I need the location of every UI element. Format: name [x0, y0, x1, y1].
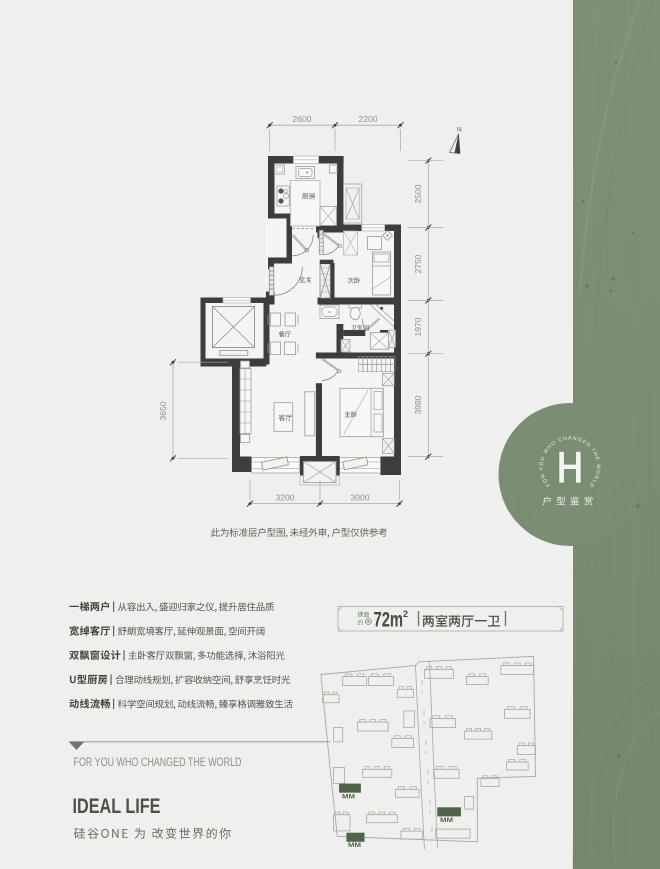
svg-text:MM: MM: [342, 795, 355, 801]
svg-text:IDEAL LIFE: IDEAL LIFE: [73, 794, 161, 818]
svg-text:3200: 3200: [276, 493, 295, 503]
svg-text:1970: 1970: [413, 317, 423, 336]
svg-text:MM: MM: [348, 843, 361, 849]
svg-text:2750: 2750: [413, 254, 423, 273]
svg-text:3650: 3650: [158, 401, 168, 420]
svg-text:2600: 2600: [293, 114, 312, 124]
svg-text:FOR YOU WHO CHANGED THE WORLD: FOR YOU WHO CHANGED THE WORLD: [74, 757, 242, 769]
svg-text:MM: MM: [440, 818, 453, 824]
svg-text:3000: 3000: [351, 493, 370, 503]
svg-text:3980: 3980: [413, 395, 423, 414]
svg-text:N: N: [457, 127, 462, 134]
svg-text:2200: 2200: [359, 114, 378, 124]
svg-text:2500: 2500: [413, 184, 423, 203]
svg-text:2: 2: [403, 609, 408, 619]
svg-text:72m: 72m: [374, 609, 404, 632]
